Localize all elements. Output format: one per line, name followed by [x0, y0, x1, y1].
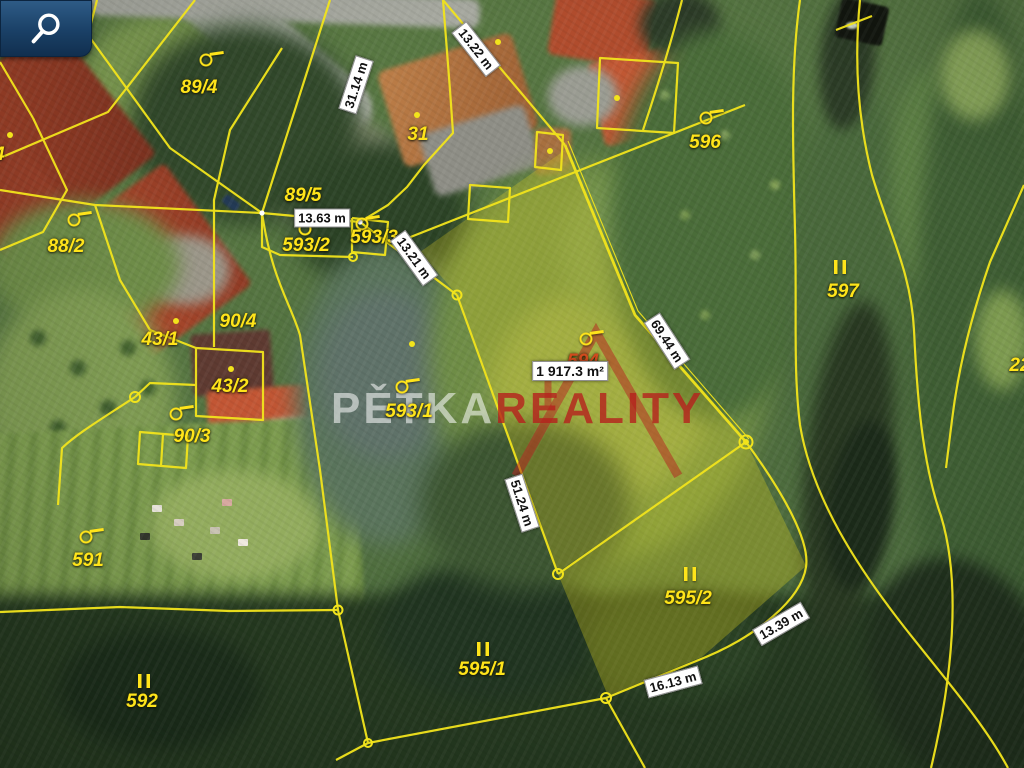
meadow-symbol-icon — [684, 567, 696, 581]
parcel-label-593-1: 593/1 — [385, 401, 433, 423]
measurement-label: 13.63 m — [294, 209, 350, 228]
parcel-label-43-2: 43/2 — [212, 376, 249, 398]
magnifier-icon — [27, 10, 65, 48]
parcel-label-90-4: 90/4 — [220, 311, 257, 333]
parcel-label-89-5: 89/5 — [285, 185, 322, 207]
watermark-brand-second: REALITY — [495, 384, 704, 433]
parcel-label-43-1: 43/1 — [142, 329, 179, 351]
parcel-area-label: 1 917.3 m² — [532, 361, 608, 381]
parcel-label-597: 597 — [827, 281, 859, 303]
search-button[interactable] — [0, 0, 92, 57]
meadow-symbol-icon — [834, 260, 846, 274]
parcel-label-596: 596 — [689, 132, 721, 154]
parcel-label-90-3: 90/3 — [174, 426, 211, 448]
parcel-label-592: 592 — [126, 691, 158, 713]
meadow-symbol-icon — [477, 642, 489, 656]
map-viewport[interactable]: PĚTKAREALITY 8489/488/289/531593/2593/35… — [0, 0, 1024, 768]
parcel-label-89-4: 89/4 — [181, 77, 218, 99]
parcel-label-22: 22 — [1009, 355, 1024, 377]
parcel-label-593-2: 593/2 — [282, 235, 330, 257]
parcel-label-595-1: 595/1 — [458, 659, 506, 681]
parcel-label-31: 31 — [407, 124, 428, 146]
parcel-label-593-3: 593/3 — [350, 227, 398, 249]
parcel-label-591: 591 — [72, 550, 104, 572]
meadow-symbol-icon — [138, 674, 150, 688]
parcel-label-595-2: 595/2 — [664, 588, 712, 610]
parcel-label-84: 84 — [0, 144, 5, 166]
parcel-label-88-2: 88/2 — [48, 236, 85, 258]
